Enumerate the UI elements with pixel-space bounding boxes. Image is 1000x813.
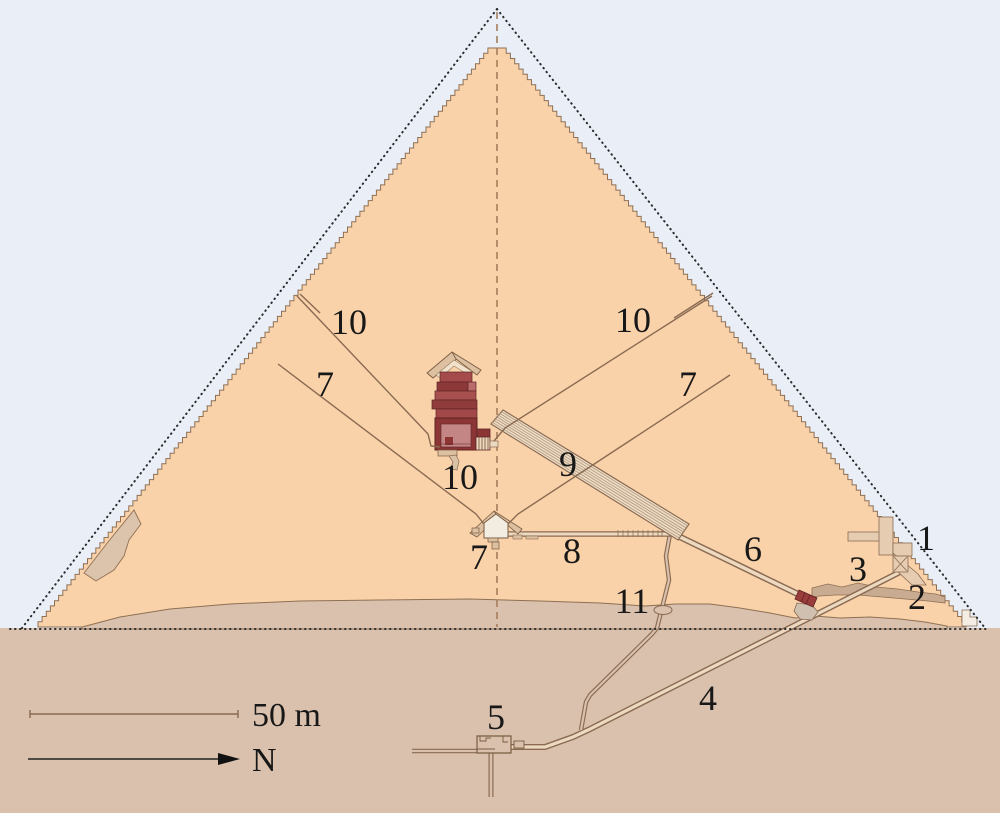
label-horizontal-passage: 8 bbox=[563, 531, 581, 571]
label-kings-shaft-north: 10 bbox=[615, 300, 651, 340]
label-descending-passage-upper: 3 bbox=[849, 549, 867, 589]
label-robbers-tunnel: 2 bbox=[908, 577, 926, 617]
scale-bar-label: 50 m bbox=[252, 697, 321, 734]
north-label: N bbox=[252, 742, 277, 779]
pyramid-cross-section-diagram: 1 2 3 4 5 6 7 7 7 8 9 10 10 10 11 50 m N bbox=[0, 0, 1000, 813]
label-descending-passage-lower: 4 bbox=[699, 678, 717, 718]
label-kings-chamber: 10 bbox=[442, 457, 478, 497]
label-grand-gallery: 9 bbox=[559, 444, 577, 484]
label-subterranean-chamber: 5 bbox=[487, 697, 505, 737]
label-ascending-passage: 6 bbox=[744, 529, 762, 569]
antechamber bbox=[477, 429, 490, 437]
label-original-entrance: 1 bbox=[917, 518, 935, 558]
label-well-shaft-grotto: 11 bbox=[615, 581, 650, 621]
grotto bbox=[654, 606, 672, 615]
portcullis bbox=[476, 437, 490, 450]
label-queens-chamber: 7 bbox=[470, 537, 488, 577]
label-queens-shaft-south: 7 bbox=[316, 364, 334, 404]
label-kings-shaft-south: 10 bbox=[331, 302, 367, 342]
label-queens-shaft-north: 7 bbox=[679, 364, 697, 404]
diagram-canvas: 1 2 3 4 5 6 7 7 7 8 9 10 10 10 11 50 m N bbox=[0, 0, 1000, 813]
